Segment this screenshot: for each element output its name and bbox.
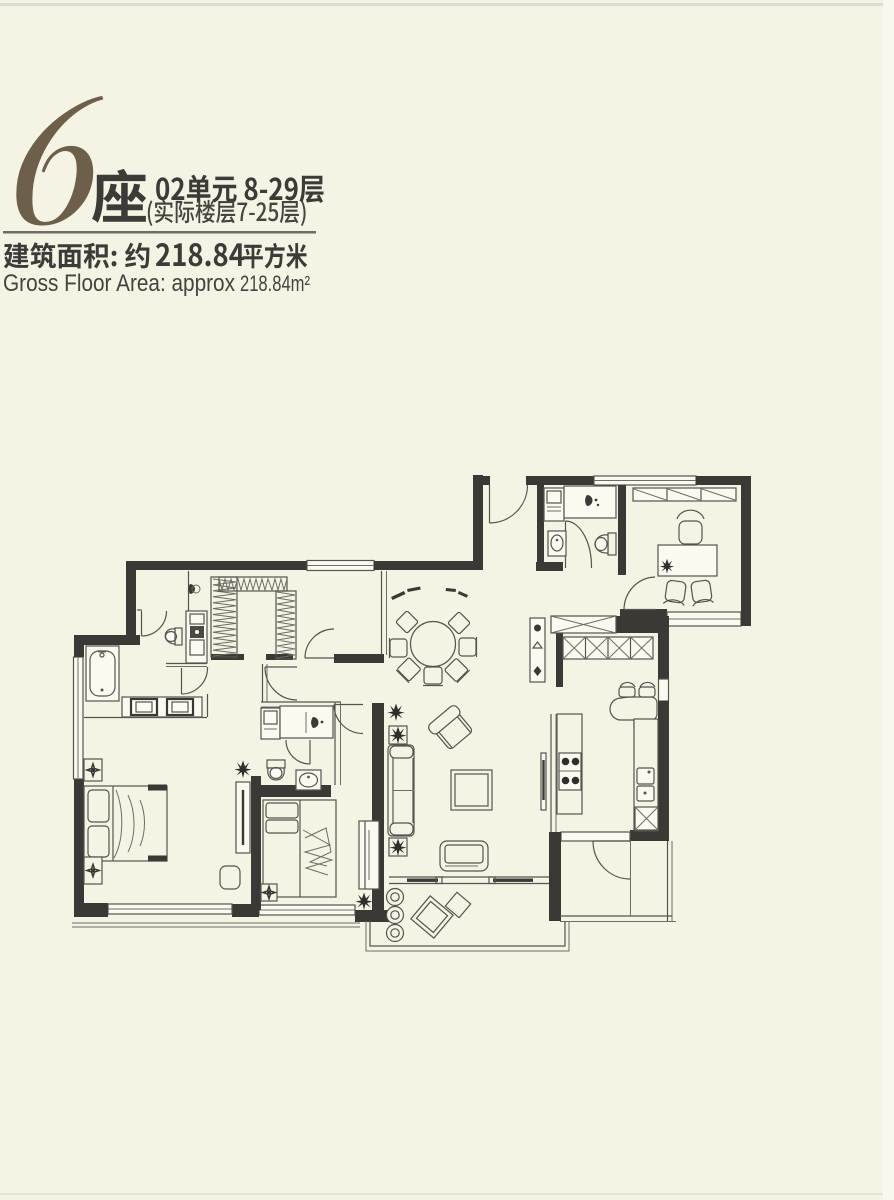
svg-text:218.84m²: 218.84m²	[240, 271, 310, 296]
svg-text:Gross Floor Area: approx: Gross Floor Area: approx	[3, 270, 235, 297]
